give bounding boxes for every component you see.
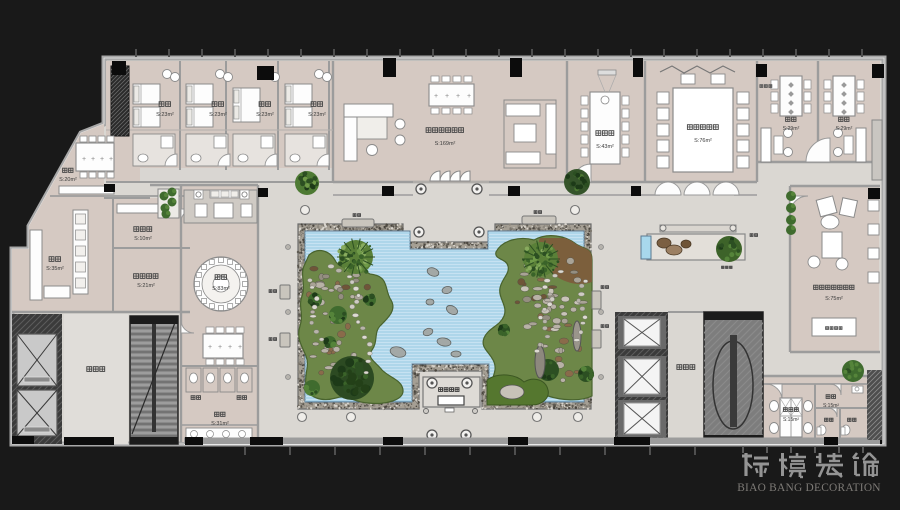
svg-text:S:23m²: S:23m² [156, 112, 174, 118]
svg-text:+: + [228, 344, 232, 351]
svg-text:+: + [467, 93, 471, 100]
svg-text:+: + [82, 156, 86, 163]
svg-text:S:29m²: S:29m² [783, 126, 800, 132]
svg-text:S:75m²: S:75m² [825, 296, 843, 302]
svg-text:S:15m²: S:15m² [823, 403, 839, 409]
svg-text:+: + [218, 344, 222, 351]
svg-text:BIAO BANG DECORATION: BIAO BANG DECORATION [737, 482, 881, 494]
svg-text:+: + [91, 156, 95, 163]
svg-text:S:83m²: S:83m² [212, 286, 230, 292]
svg-text:S:15m²: S:15m² [783, 417, 799, 423]
svg-text:S:23m²: S:23m² [209, 112, 227, 118]
svg-text:S:169m²: S:169m² [435, 141, 456, 147]
svg-text:+: + [445, 93, 449, 100]
svg-text:S:29m²: S:29m² [836, 126, 853, 132]
svg-text:+: + [434, 93, 438, 100]
svg-text:S:43m²: S:43m² [596, 144, 614, 150]
svg-text:+: + [109, 156, 113, 163]
svg-text:S:31m²: S:31m² [211, 421, 229, 427]
svg-text:S:10m²: S:10m² [134, 236, 152, 242]
svg-text:S:76m²: S:76m² [694, 138, 712, 144]
svg-text:S:23m²: S:23m² [256, 112, 274, 118]
svg-text:S:20m²: S:20m² [59, 177, 77, 183]
svg-text:S:21m²: S:21m² [137, 283, 155, 289]
svg-text:+: + [208, 344, 212, 351]
svg-text:S:35m²: S:35m² [46, 266, 64, 272]
svg-text:S:23m²: S:23m² [308, 112, 326, 118]
svg-text:+: + [238, 344, 242, 351]
svg-text:+: + [100, 156, 104, 163]
svg-text:+: + [456, 93, 460, 100]
